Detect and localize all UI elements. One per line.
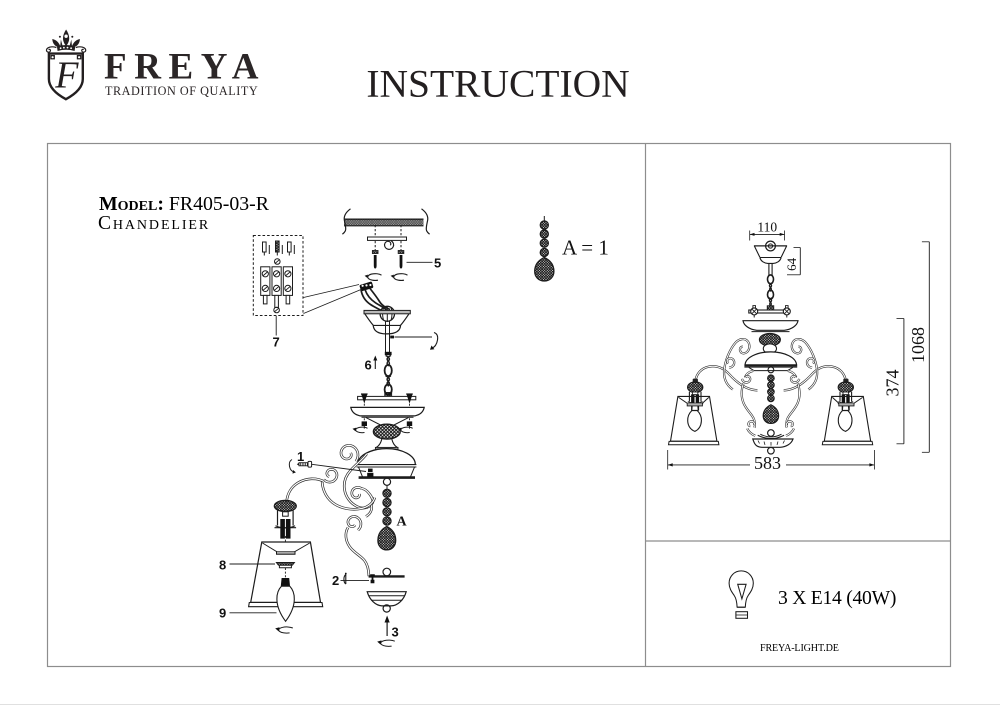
svg-text:5: 5 <box>434 256 441 271</box>
svg-text:1: 1 <box>297 449 304 464</box>
svg-text:6: 6 <box>365 358 372 373</box>
svg-text:8: 8 <box>219 558 226 573</box>
svg-text:A = 1: A = 1 <box>562 236 609 260</box>
svg-text:1068: 1068 <box>908 327 928 363</box>
svg-text:3: 3 <box>392 625 399 640</box>
svg-text:F: F <box>54 55 79 97</box>
svg-text:2: 2 <box>332 573 339 588</box>
svg-text:FREYA: FREYA <box>104 47 266 88</box>
svg-text:7: 7 <box>273 335 280 350</box>
svg-text:110: 110 <box>757 220 777 235</box>
svg-text:583: 583 <box>754 453 781 473</box>
svg-text:3 X E14 (40W): 3 X E14 (40W) <box>778 588 896 609</box>
svg-text:374: 374 <box>883 370 903 397</box>
svg-text:64: 64 <box>784 257 799 271</box>
svg-text:9: 9 <box>219 606 226 621</box>
svg-text:Model: FR405-03-R: Model: FR405-03-R <box>99 193 270 215</box>
svg-text:TRADITION OF QUALITY: TRADITION OF QUALITY <box>105 84 258 98</box>
svg-text:INSTRUCTION: INSTRUCTION <box>366 62 629 106</box>
svg-text:FREYA-LIGHT.DE: FREYA-LIGHT.DE <box>760 643 839 654</box>
svg-text:A: A <box>397 515 408 530</box>
svg-text:Chandelier: Chandelier <box>98 213 210 234</box>
